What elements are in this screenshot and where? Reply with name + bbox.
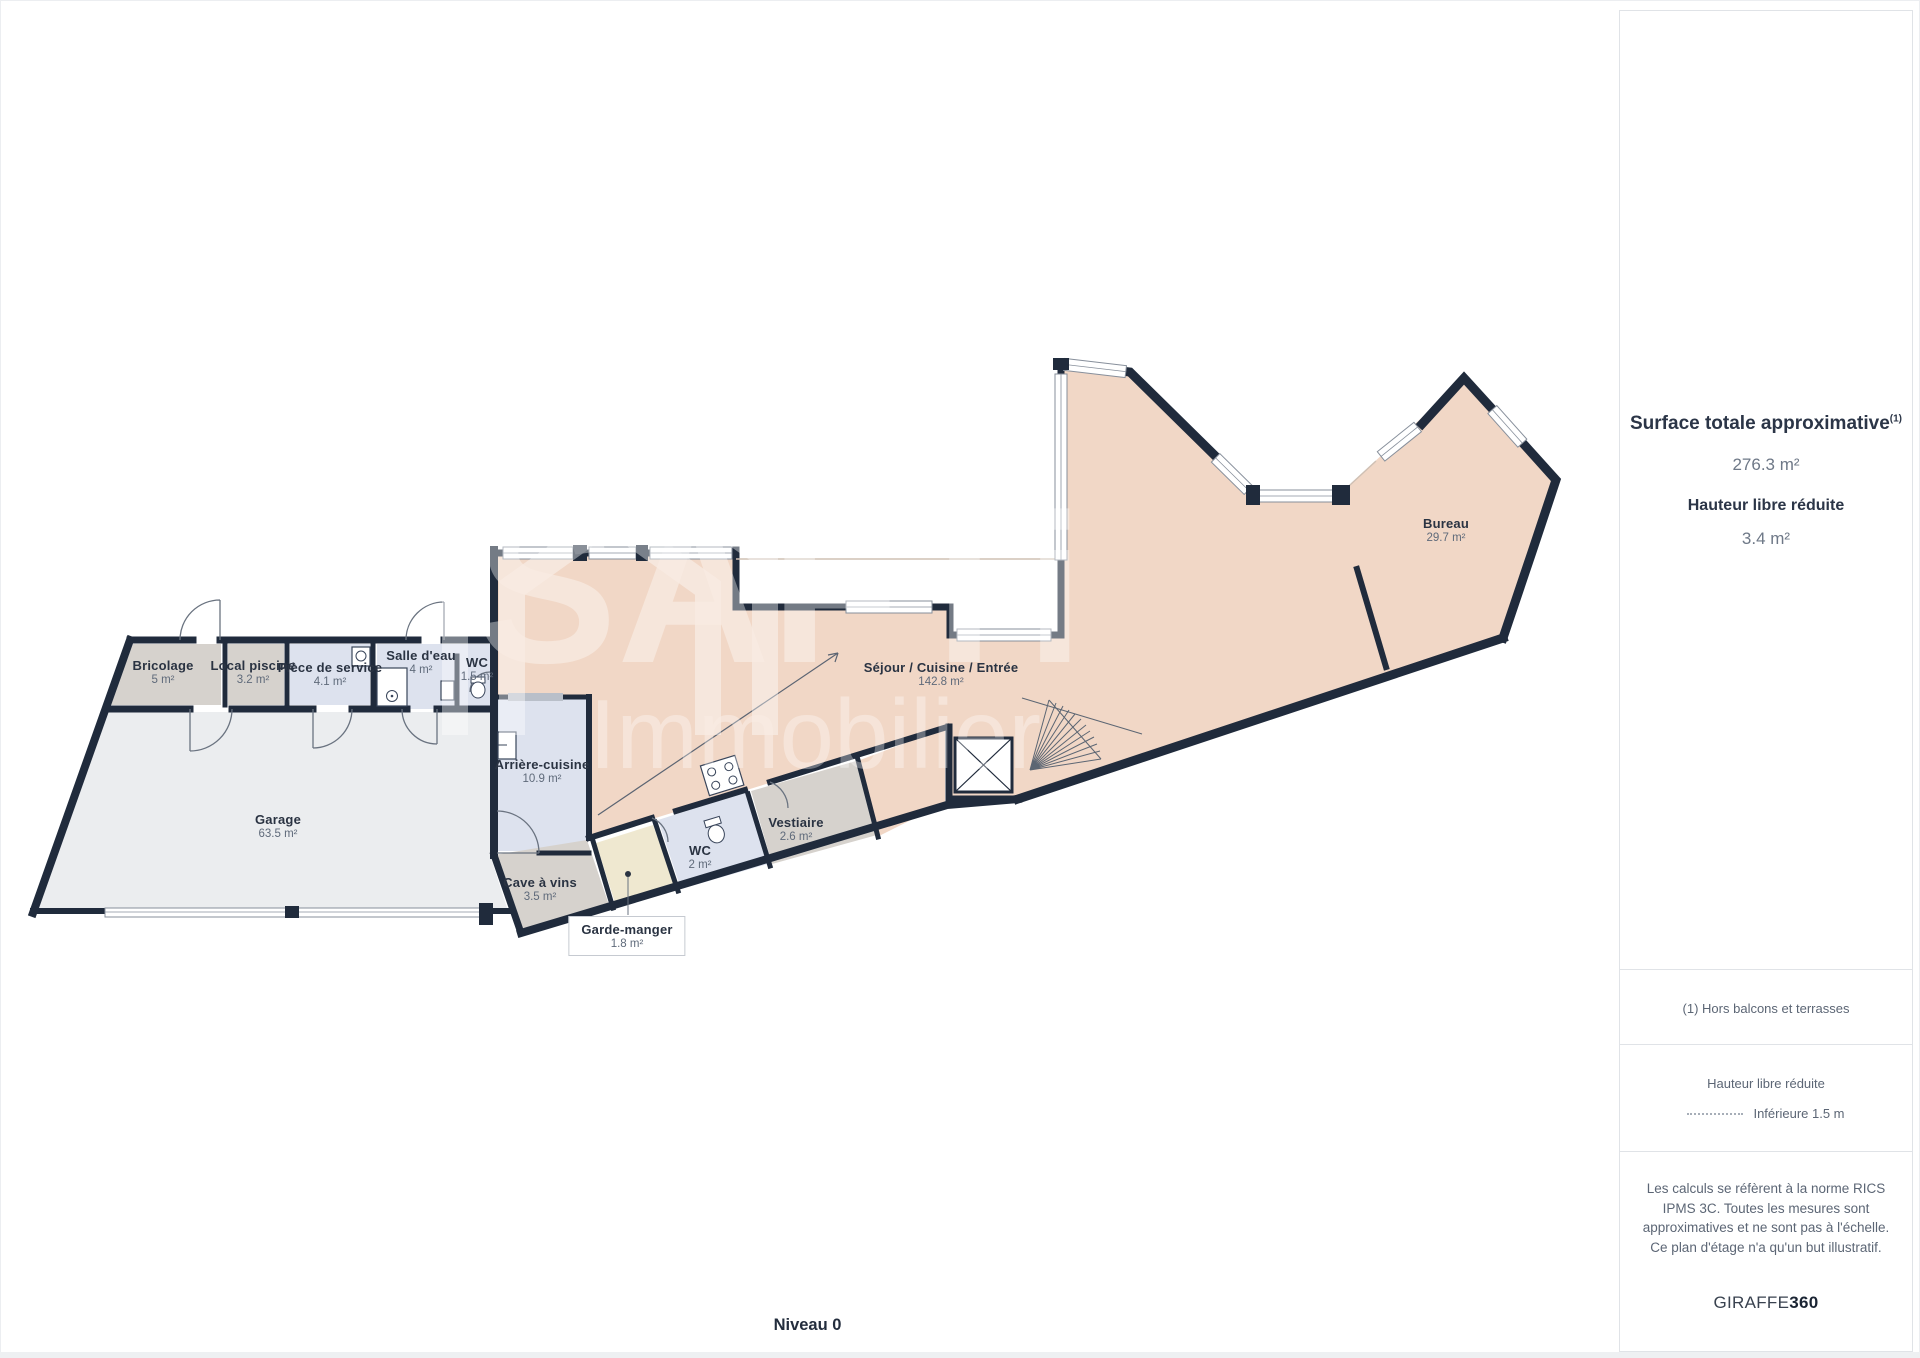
divider bbox=[1620, 1044, 1912, 1045]
room-label-bricolage: Bricolage 5 m² bbox=[132, 658, 193, 686]
fridge-icon bbox=[498, 732, 516, 759]
page-bottom-edge bbox=[0, 1352, 1920, 1358]
brand-suffix: 360 bbox=[1789, 1293, 1818, 1312]
room-label-piece-de-service: Pièce de service 4.1 m² bbox=[278, 660, 382, 688]
brand-logo: GIRAFFE360 bbox=[1620, 1293, 1912, 1313]
room-label-wc-small: WC 1.5 m² bbox=[461, 655, 494, 683]
footnote: (1) Hors balcons et terrasses bbox=[1620, 1001, 1912, 1016]
svg-text:Immobilier: Immobilier bbox=[589, 679, 1041, 789]
page: SAFTi Immobilier Bricolage 5 m² Local pi… bbox=[0, 0, 1920, 1358]
room-label-arriere-cuisine: Arrière-cuisine 10.9 m² bbox=[495, 757, 590, 785]
summary-panel: Surface totale approximative(1) 276.3 m²… bbox=[1619, 10, 1913, 1352]
room-label-cave-a-vins: Cave à vins 3.5 m² bbox=[503, 875, 577, 903]
level-label: Niveau 0 bbox=[0, 1316, 1615, 1335]
room-label-salle-deau: Salle d'eau 4 m² bbox=[386, 648, 456, 676]
reduced-area-value: 3.4 m² bbox=[1620, 529, 1912, 549]
legend-row: Inférieure 1.5 m bbox=[1620, 1106, 1912, 1121]
room-label-garde-manger: Garde-manger 1.8 m² bbox=[568, 916, 685, 956]
room-label-vestiaire: Vestiaire 2.6 m² bbox=[768, 815, 823, 843]
divider bbox=[1620, 969, 1912, 970]
room-label-sejour: Séjour / Cuisine / Entrée 142.8 m² bbox=[864, 660, 1019, 688]
legend-label: Inférieure 1.5 m bbox=[1753, 1106, 1844, 1121]
disclaimer-text: Les calculs se réfèrent à la norme RICS … bbox=[1641, 1179, 1891, 1257]
room-label-wc: WC 2 m² bbox=[689, 843, 712, 871]
footnote-marker: (1) bbox=[1890, 414, 1902, 425]
panel-subtitle: Hauteur libre réduite bbox=[1620, 497, 1912, 515]
room-label-bureau: Bureau 29.7 m² bbox=[1423, 516, 1469, 544]
divider bbox=[1620, 1151, 1912, 1152]
total-area-value: 276.3 m² bbox=[1620, 455, 1912, 475]
brand-name: GIRAFFE bbox=[1713, 1293, 1789, 1312]
legend-title: Hauteur libre réduite bbox=[1620, 1076, 1912, 1091]
dashed-line-sample bbox=[1687, 1113, 1743, 1115]
room-label-garage: Garage 63.5 m² bbox=[255, 812, 301, 840]
panel-title: Surface totale approximative(1) bbox=[1620, 413, 1912, 435]
